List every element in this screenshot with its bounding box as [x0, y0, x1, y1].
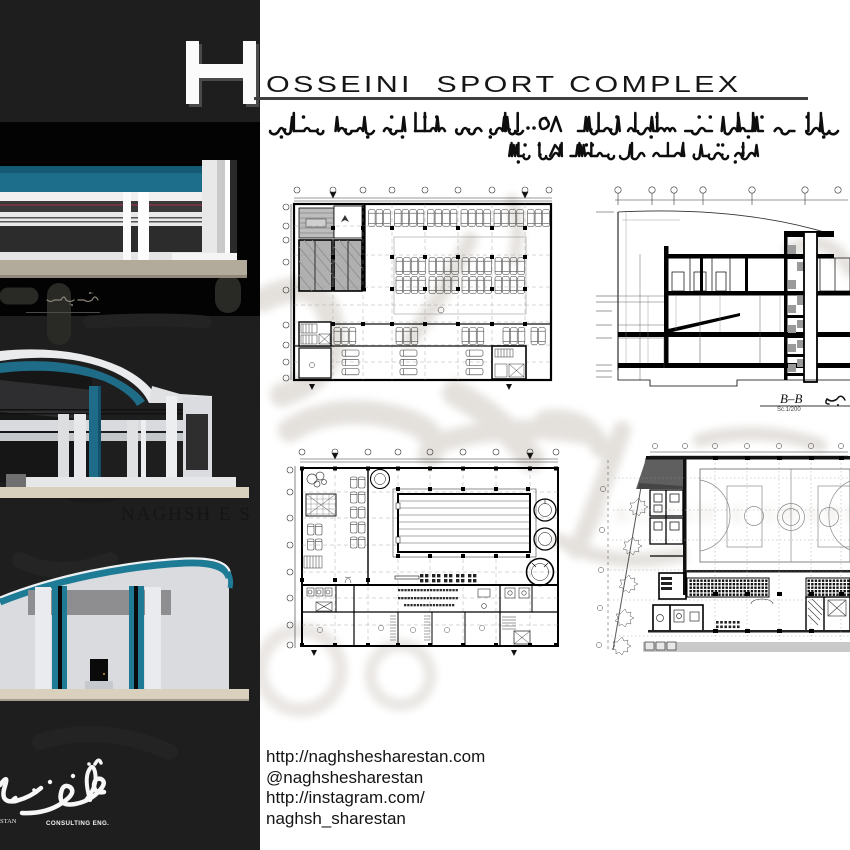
svg-text:STAN: STAN — [0, 818, 17, 825]
svg-text:Sc.1/200: Sc.1/200 — [777, 407, 801, 413]
svg-text:B–B: B–B — [780, 391, 802, 406]
svg-text:NAGHSH E S: NAGHSH E S — [121, 504, 252, 525]
svg-text:CONSULTING ENG.: CONSULTING ENG. — [46, 820, 109, 827]
